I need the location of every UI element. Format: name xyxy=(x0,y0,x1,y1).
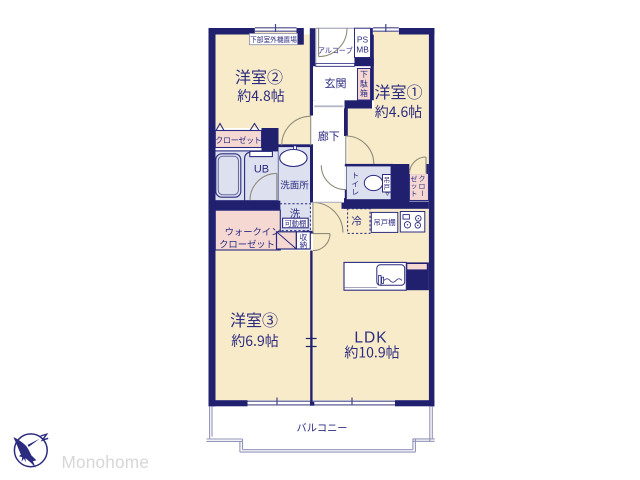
svg-text:約6.9帖: 約6.9帖 xyxy=(231,331,278,351)
svg-text:約10.9帖: 約10.9帖 xyxy=(344,343,399,363)
svg-text:バルコニー: バルコニー xyxy=(297,419,348,434)
svg-text:UB: UB xyxy=(254,163,269,175)
svg-text:洋室③: 洋室③ xyxy=(230,307,278,331)
svg-text:吊戸棚: 吊戸棚 xyxy=(373,217,395,228)
svg-text:納: 納 xyxy=(300,239,308,250)
svg-text:箱: 箱 xyxy=(360,88,368,99)
svg-text:約4.8帖: 約4.8帖 xyxy=(237,86,284,106)
svg-text:洋室②: 洋室② xyxy=(235,64,283,88)
svg-text:戸: 戸 xyxy=(384,182,390,191)
svg-text:玄関: 玄関 xyxy=(325,75,347,91)
svg-text:ト: ト xyxy=(411,188,418,198)
svg-text:PS: PS xyxy=(357,35,369,45)
svg-text:冷: 冷 xyxy=(351,213,362,228)
svg-text:洗面所: 洗面所 xyxy=(280,177,309,191)
svg-text:下部室外機置場: 下部室外機置場 xyxy=(250,34,297,44)
svg-text:レ: レ xyxy=(352,187,360,198)
svg-text:約4.6帖: 約4.6帖 xyxy=(375,102,422,122)
svg-text:可動棚: 可動棚 xyxy=(285,219,307,229)
svg-text:クローゼット: クローゼット xyxy=(219,237,275,251)
svg-text:クローゼット: クローゼット xyxy=(215,135,261,146)
svg-text:MB: MB xyxy=(356,44,369,54)
svg-text:洋室①: 洋室① xyxy=(374,79,422,103)
svg-text:ー: ー xyxy=(418,190,428,197)
svg-text:Monohome: Monohome xyxy=(62,452,150,472)
svg-text:廊下: 廊下 xyxy=(318,128,340,144)
